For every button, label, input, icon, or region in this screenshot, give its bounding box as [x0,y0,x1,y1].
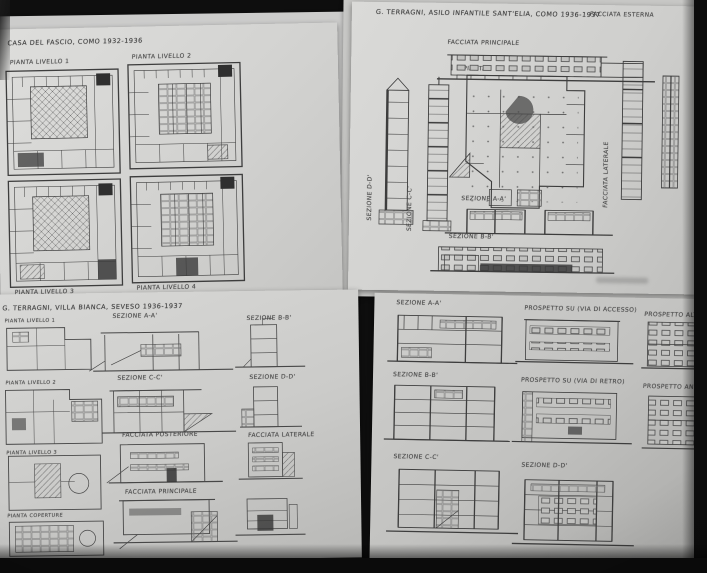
sheet-villa-bianca: G. TERRAGNI, VILLA BIANCA, SEVESO 1936-1… [0,289,362,562]
photo-right-fade [682,0,694,573]
sheet-casa-del-fascio: CASA DEL FASCIO, COMO 1932-1936 PIANTA L… [0,22,343,305]
sheet-sections-elevations: SEZIONE A-A' PROSPETTO SU (VIA DI ACCESS… [369,293,707,569]
sections-elevations-drawing [369,293,707,569]
photo-of-architecture-sheets: CASA DEL FASCIO, COMO 1932-1936 PIANTA L… [0,0,707,573]
asilo-sant-elia-drawing [348,2,700,295]
photo-right-edge [694,0,707,573]
casa-del-fascio-drawing [0,22,343,305]
villa-bianca-drawing [0,289,362,562]
photo-bottom-edge [0,558,707,573]
photo-bottom-fade [0,544,707,558]
sheet-asilo-sant-elia: G. TERRAGNI, ASILO INFANTILE SANT'ELIA, … [348,2,700,295]
photo-corner-shadow [0,0,10,80]
